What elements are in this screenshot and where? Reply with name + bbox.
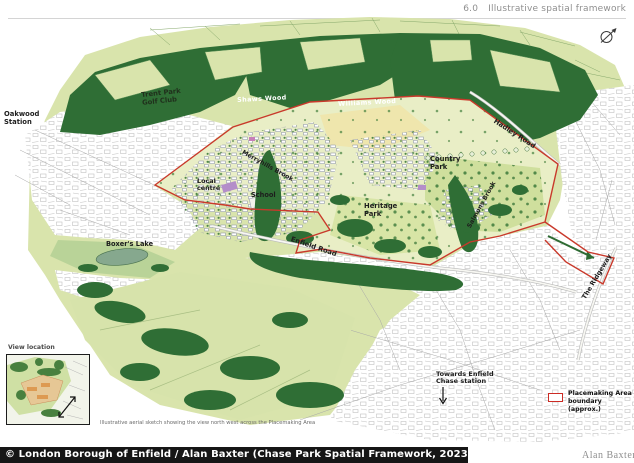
label-school: School bbox=[251, 192, 276, 200]
down-arrow-icon bbox=[438, 387, 448, 405]
page: 6.0Illustrative spatial framework bbox=[0, 0, 634, 463]
boundary-legend-swatch bbox=[548, 393, 563, 402]
boundary-legend-label: Placemaking Area boundary (approx.) bbox=[568, 390, 632, 414]
label-local-centre: Local centre bbox=[197, 178, 223, 193]
label-boxers-lake: Boxer's Lake bbox=[106, 241, 153, 249]
copyright-bar: © London Borough of Enfield / Alan Baxte… bbox=[0, 447, 468, 463]
spatial-framework-map bbox=[0, 0, 634, 447]
label-oakwood-station: Oakwood Station bbox=[4, 111, 40, 127]
north-arrow-icon bbox=[598, 26, 620, 46]
label-heritage-park: Heritage Park bbox=[364, 203, 398, 219]
inset-map bbox=[7, 355, 89, 424]
figure-caption: Illustrative aerial sketch showing the v… bbox=[100, 420, 315, 426]
copyright-text: © London Borough of Enfield / Alan Baxte… bbox=[0, 447, 468, 463]
label-country-park: Country Park bbox=[430, 156, 462, 172]
alan-baxter-logo: Alan Baxter bbox=[582, 450, 634, 461]
label-towards-enfield-chase: Towards Enfield Chase station bbox=[436, 371, 494, 386]
inset-title: View location bbox=[8, 344, 55, 351]
inset-map-box bbox=[6, 354, 90, 425]
